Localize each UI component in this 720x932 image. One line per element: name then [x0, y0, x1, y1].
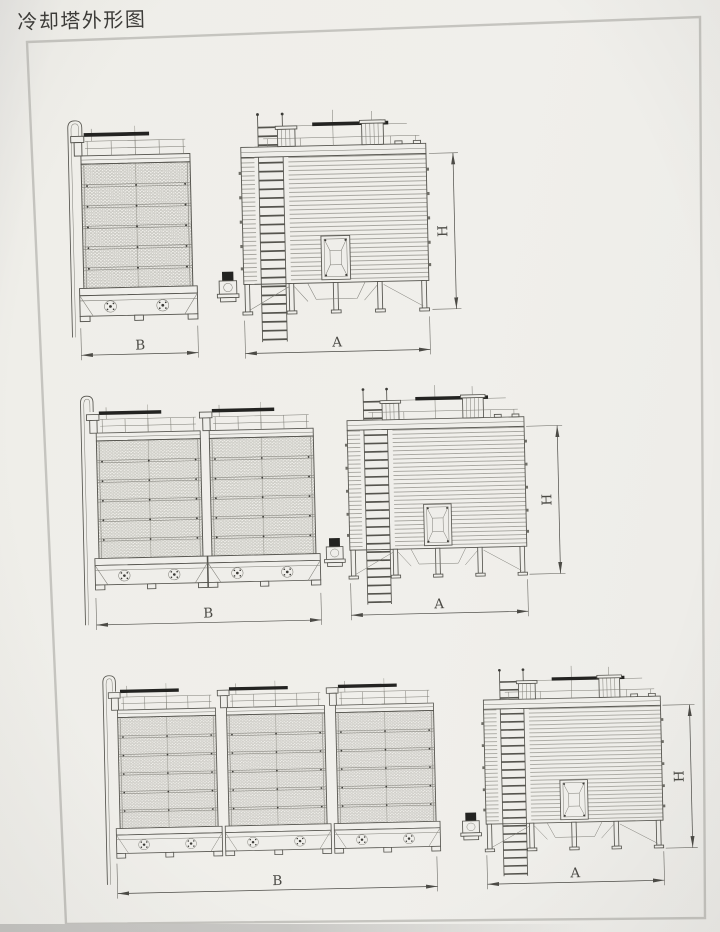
dimension-width-a-row3: A: [487, 851, 665, 889]
dimension-width-a-row1: A: [245, 316, 431, 358]
dimension-label-b: B: [135, 337, 145, 353]
three-cell-side-view: B: [103, 668, 442, 899]
tower-cell-side-view: [86, 403, 208, 590]
drawing-canvas: B A: [0, 0, 720, 932]
single-cell-tower-drawings: B A: [67, 107, 462, 362]
dimension-height-h-row2: H: [526, 425, 565, 574]
three-cell-tower-drawings: B A: [103, 662, 699, 898]
dimension-width-b-row2: B: [96, 593, 322, 630]
dimension-label-a: A: [331, 334, 342, 350]
photo-of-drawing-sheet: 冷却塔外形图: [0, 0, 720, 932]
dimension-label-a: A: [569, 865, 580, 881]
dimension-height-h-row1: H: [429, 153, 462, 310]
photo-bottom-edge: [0, 924, 720, 932]
dimension-height-h-row3: H: [663, 704, 698, 848]
two-cell-side-view: B: [80, 391, 321, 630]
drawing-content: B A: [67, 102, 698, 899]
two-cell-tower-drawings: B A: [80, 382, 566, 630]
single-cell-side-view: B: [68, 118, 199, 360]
dimension-width-b-row3: B: [117, 856, 438, 898]
tower-cell-side-view: [70, 124, 198, 321]
dimension-label-b: B: [203, 605, 213, 621]
dimension-label-a: A: [433, 596, 444, 612]
single-cell-front-view: A H: [213, 107, 462, 359]
dimension-label-h: H: [671, 770, 687, 782]
tower-front-view: [321, 383, 531, 606]
three-cell-front-view: A H: [457, 663, 699, 890]
two-cell-front-view: A H: [321, 382, 567, 621]
dimension-width-b-row1: B: [81, 326, 199, 361]
dimension-label-b: B: [272, 873, 282, 889]
tower-front-view: [213, 108, 433, 343]
tower-cell-side-view: [326, 677, 441, 853]
tower-front-view: [457, 664, 667, 877]
dimension-label-h: H: [435, 225, 451, 237]
tower-cell-side-view: [108, 682, 223, 858]
dimension-label-h: H: [539, 493, 555, 505]
tower-cell-side-view: [217, 679, 332, 855]
tower-cell-side-view: [199, 401, 321, 588]
